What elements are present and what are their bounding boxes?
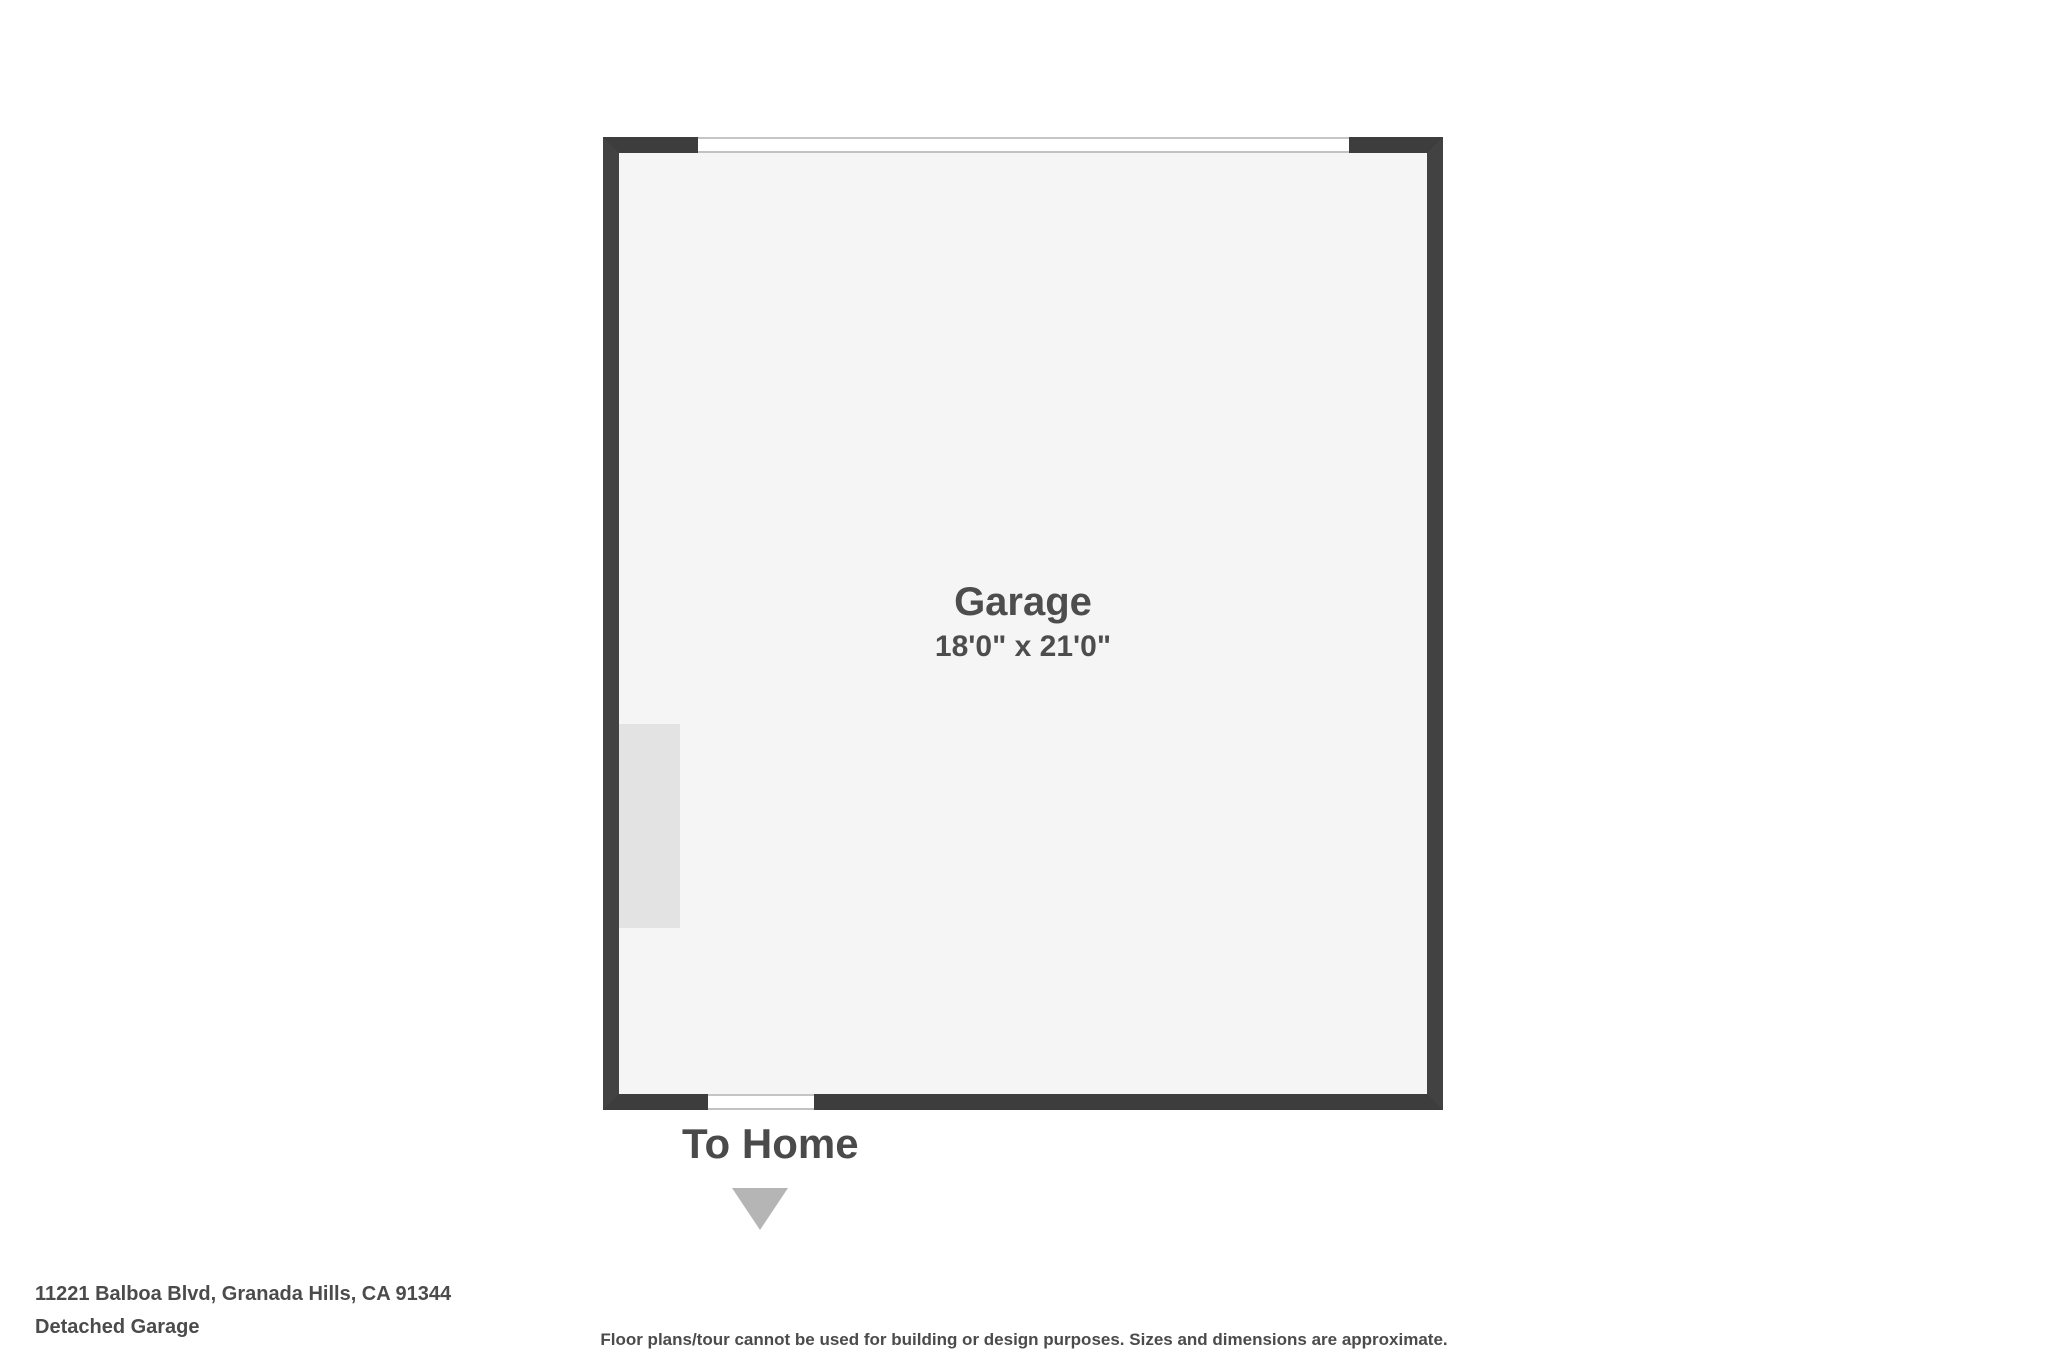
room-label: Garage 18'0" x 21'0" (603, 580, 1443, 663)
garage-door-opening (698, 137, 1349, 153)
disclaimer-text: Floor plans/tour cannot be used for buil… (0, 1330, 2048, 1350)
room-dimensions-label: 18'0" x 21'0" (603, 630, 1443, 663)
room-name-label: Garage (603, 580, 1443, 624)
to-home-arrow-icon (732, 1188, 788, 1230)
property-address: 11221 Balboa Blvd, Granada Hills, CA 913… (35, 1283, 451, 1306)
to-home-label: To Home (682, 1120, 859, 1168)
built-in-fixture (619, 724, 680, 928)
floorplan-page: Garage 18'0" x 21'0" To Home 11221 Balbo… (0, 0, 2048, 1365)
to-home-door-opening (708, 1094, 814, 1110)
